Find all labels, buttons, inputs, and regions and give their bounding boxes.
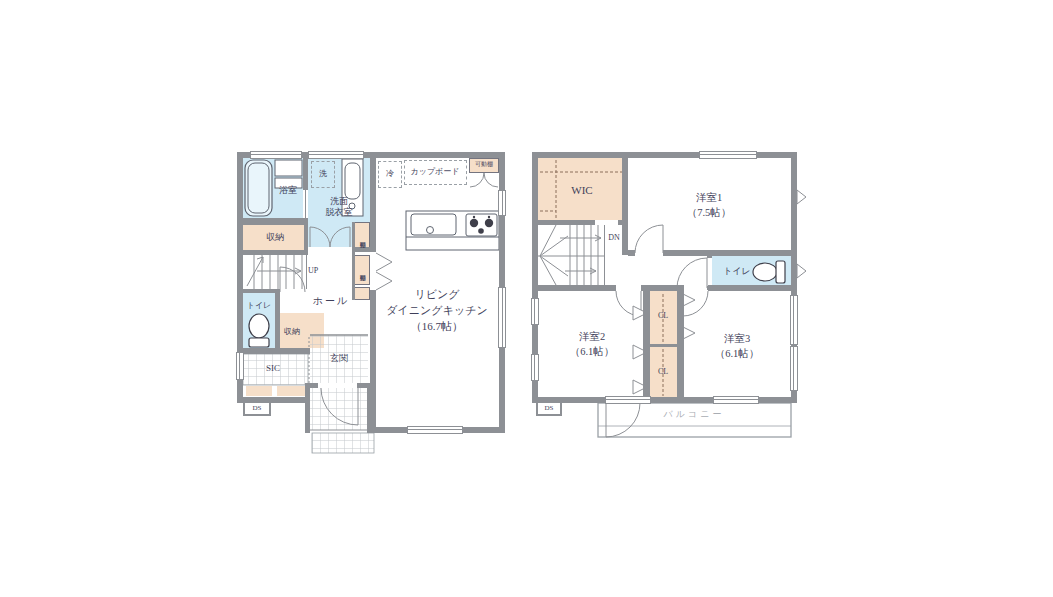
bath-label: 浴室 bbox=[279, 185, 297, 196]
kitchen-shelf-label: 可動棚 bbox=[475, 161, 493, 169]
room1-label: 洋室1 （7.5帖） bbox=[687, 190, 732, 220]
ds2-label: DS bbox=[545, 404, 554, 413]
hall-label: ホール bbox=[313, 295, 349, 308]
room2-label: 洋室2 （6.1帖） bbox=[570, 329, 615, 359]
ds1-label: DS bbox=[253, 404, 262, 413]
vent-triangles bbox=[797, 190, 806, 278]
room3-label: 洋室3 （6.1帖） bbox=[715, 331, 760, 361]
ldk-label: リビング ダイニングキッチン （16.7帖） bbox=[386, 286, 487, 334]
floorplan-canvas: 浴室 洗面 脱衣室 洗 冷 カップボード 可動棚 可動棚 可動棚 収納 UP ト… bbox=[0, 0, 1053, 597]
storage2-label: 収納 bbox=[284, 327, 300, 337]
storage1-label: 収納 bbox=[266, 232, 284, 243]
toilet1-label: トイレ bbox=[247, 301, 272, 311]
washer-label: 洗 bbox=[319, 169, 327, 179]
dn-label: DN bbox=[608, 233, 620, 243]
wic-label: WIC bbox=[571, 184, 592, 198]
up-label: UP bbox=[308, 266, 318, 276]
cupboard-label: カップボード bbox=[411, 167, 460, 177]
entrance-label: 玄関 bbox=[330, 353, 348, 364]
washroom-label: 洗面 脱衣室 bbox=[326, 196, 353, 219]
cl1-label: CL bbox=[658, 311, 668, 321]
balcony-label: バルコニー bbox=[664, 409, 725, 420]
toilet2-label: トイレ bbox=[723, 266, 751, 277]
fridge-label: 冷 bbox=[386, 169, 394, 179]
sic-label: SIC bbox=[266, 363, 280, 374]
vent-layer bbox=[0, 0, 1053, 597]
cl2-label: CL bbox=[658, 367, 668, 377]
